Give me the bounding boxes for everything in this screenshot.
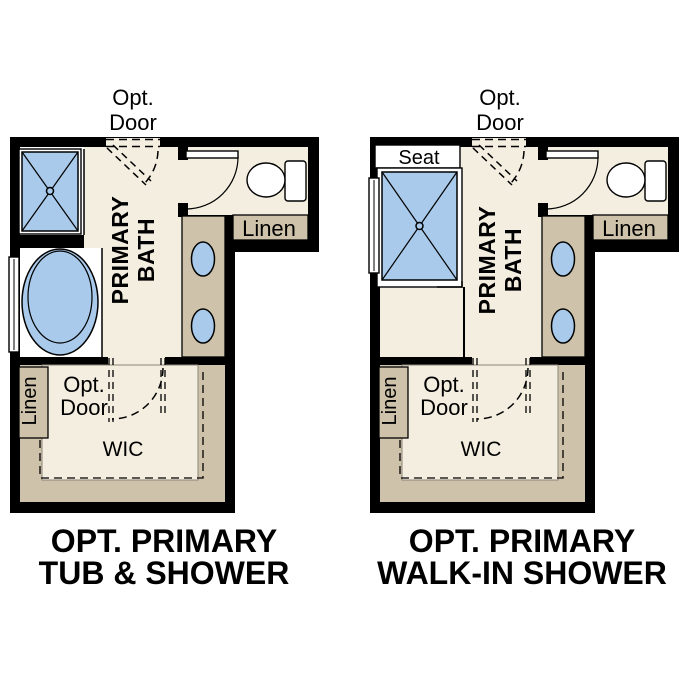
linen-upper-label: Linen: [242, 216, 296, 241]
plan-caption-line2: WALK-IN SHOWER: [377, 555, 667, 591]
toilet-tank: [285, 161, 306, 201]
plan-tub-shower: Opt. Door PRIMARY BATH Linen Linen Opt. …: [9, 85, 319, 591]
floor-plan-canvas: Opt. Door PRIMARY BATH Linen Linen Opt. …: [0, 0, 687, 687]
toilet-bowl: [247, 163, 285, 197]
wic-label: WIC: [103, 438, 144, 461]
plan-caption-line2: TUB & SHOWER: [39, 555, 290, 591]
sink: [552, 242, 575, 276]
room-label-primary: PRIMARY: [107, 196, 133, 305]
sink: [192, 242, 215, 276]
sink: [192, 309, 215, 343]
plan-caption-line1: OPT. PRIMARY: [409, 523, 635, 559]
door-leaf: [546, 151, 598, 158]
tub: [22, 249, 98, 355]
wic-door-gap: [108, 357, 165, 365]
linen-lower-label: Linen: [19, 377, 41, 426]
floorplan-page: Opt. Door PRIMARY BATH Linen Linen Opt. …: [0, 0, 687, 687]
plan-caption-line1: OPT. PRIMARY: [51, 523, 277, 559]
opt-door-lower-label-line1: Opt.: [423, 372, 465, 397]
toilet-room-wall-stub: [538, 203, 548, 217]
room-label-bath: BATH: [500, 228, 526, 292]
opt-door-lower-label-line2: Door: [420, 395, 468, 420]
seat-label: Seat: [398, 147, 440, 169]
wic-door-gap: [472, 357, 530, 365]
opt-door-top-label-line2: Door: [109, 110, 157, 135]
opt-door-top-label-line2: Door: [476, 110, 524, 135]
sink: [552, 309, 575, 343]
opt-door-top-label-line1: Opt.: [112, 85, 154, 110]
opt-door-lower-label-line1: Opt.: [63, 372, 105, 397]
linen-lower-label: Linen: [379, 377, 401, 426]
wic-label: WIC: [461, 438, 502, 461]
toilet-room-wall-stub: [178, 203, 188, 217]
shower-drain: [416, 223, 423, 230]
linen-upper-label: Linen: [602, 216, 656, 241]
room-label-bath: BATH: [133, 218, 159, 282]
opt-door-top-label-line1: Opt.: [479, 85, 521, 110]
plan-walk-in-shower: Opt. Door Seat PRIMARY BATH Linen Linen …: [369, 85, 679, 591]
opt-door-lower-label-line2: Door: [60, 395, 108, 420]
room-label-primary: PRIMARY: [474, 206, 500, 315]
toilet-tank: [645, 161, 666, 201]
toilet-bowl: [607, 163, 645, 197]
door-leaf: [186, 151, 238, 158]
shower-drain: [47, 188, 54, 195]
